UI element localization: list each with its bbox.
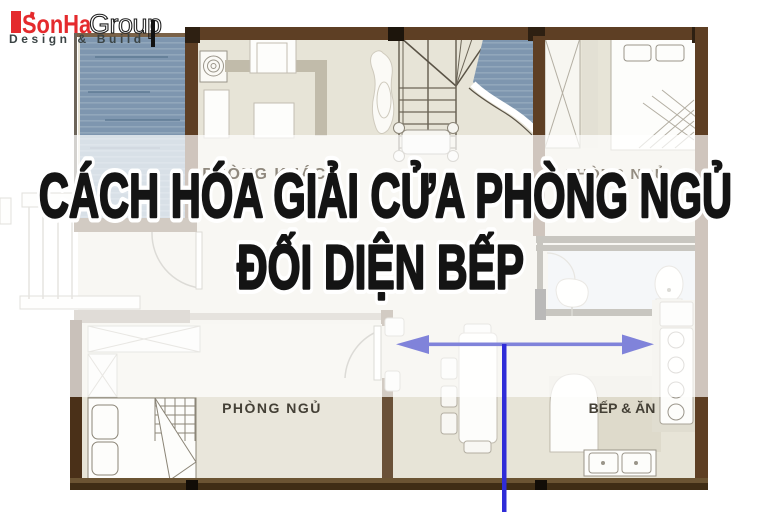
- svg-text:BẾP & ĂN: BẾP & ĂN: [589, 400, 656, 416]
- svg-text:ĐỐI DIỆN BẾP: ĐỐI DIỆN BẾP: [237, 231, 524, 302]
- svg-text:PHÒNG NGỦ: PHÒNG NGỦ: [222, 399, 322, 416]
- svg-text:CÁCH HÓA GIẢI CỬA PHÒNG NGỦ: CÁCH HÓA GIẢI CỬA PHÒNG NGỦ: [39, 161, 732, 231]
- svg-text:Design & Build: Design & Build: [9, 32, 145, 46]
